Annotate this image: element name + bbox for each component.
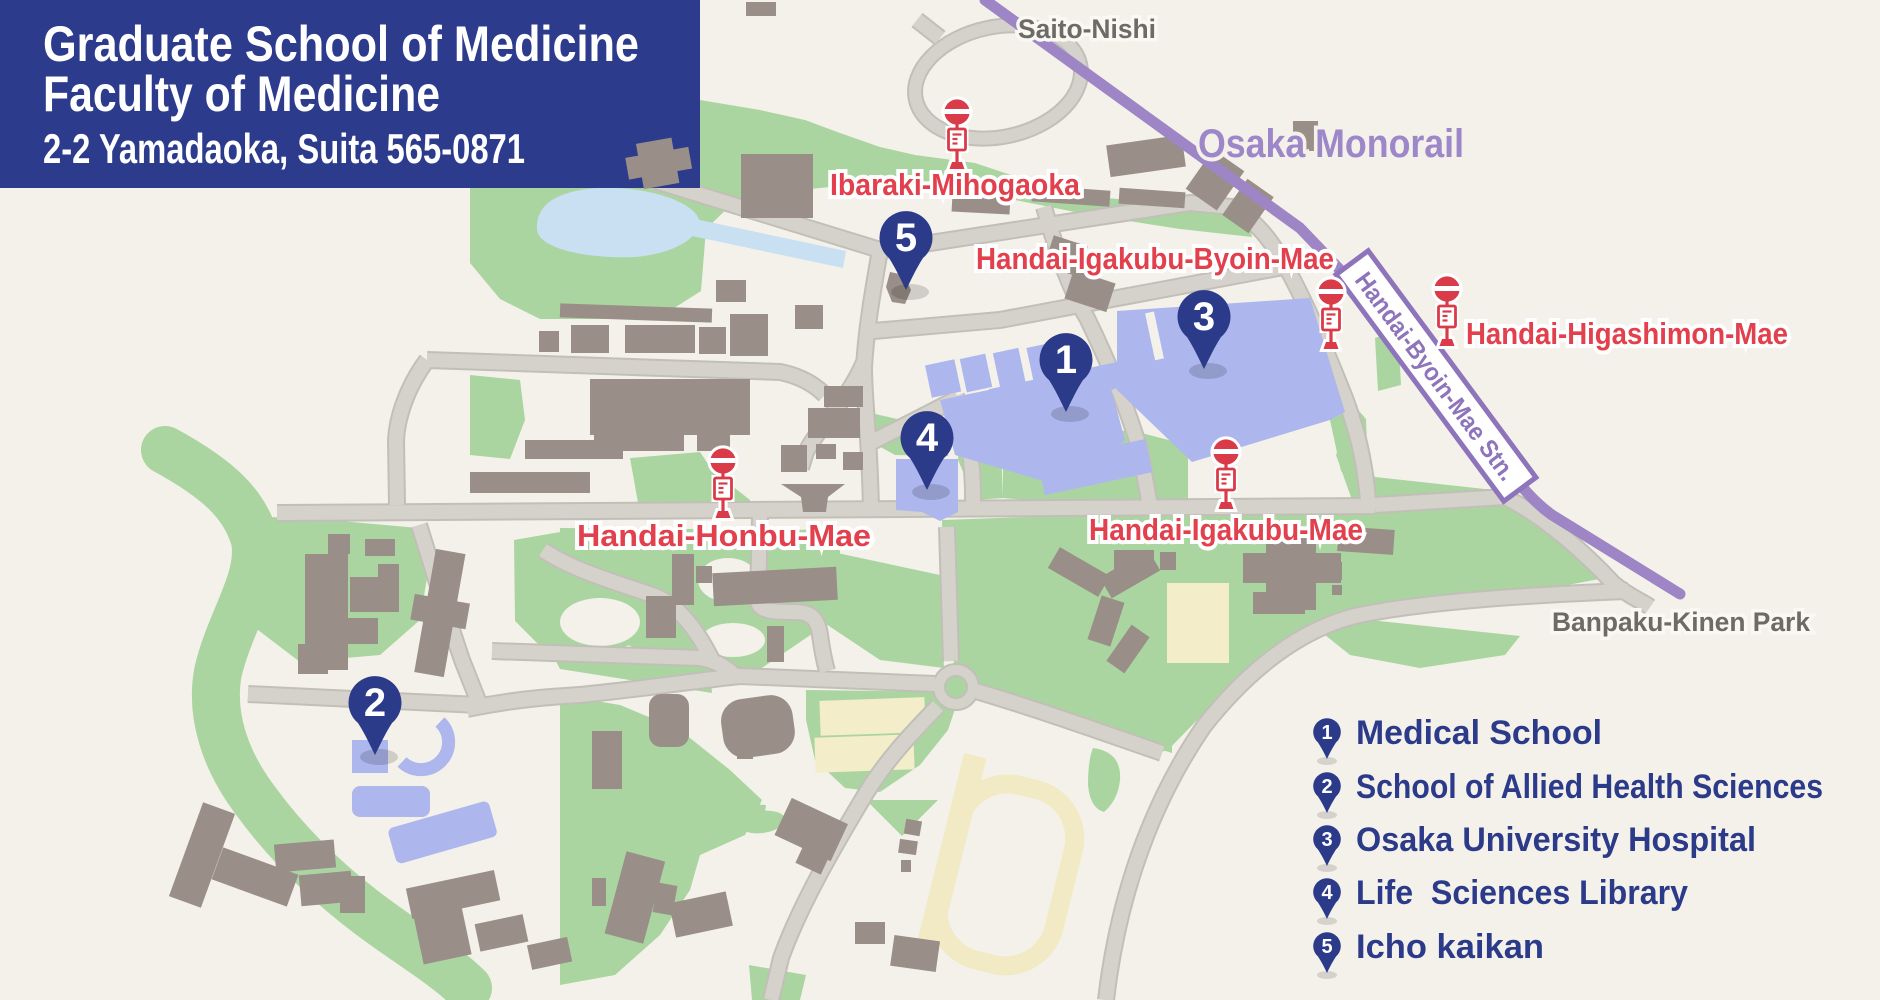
svg-text:Handai-Higashimon-Mae: Handai-Higashimon-Mae (1466, 316, 1788, 351)
svg-text:2: 2 (1321, 776, 1332, 798)
svg-text:5: 5 (1321, 936, 1332, 958)
svg-text:Handai-Igakubu-Byoin-Mae: Handai-Igakubu-Byoin-Mae (976, 241, 1334, 276)
svg-text:2: 2 (364, 681, 386, 725)
svg-text:2-2 Yamadaoka, Suita 565-0871: 2-2 Yamadaoka, Suita 565-0871 (43, 125, 525, 172)
svg-text:Icho kaikan: Icho kaikan (1356, 928, 1544, 966)
svg-text:4: 4 (916, 416, 939, 460)
svg-text:School of Allied Health Scienc: School of Allied Health Sciences (1356, 768, 1823, 806)
svg-text:Handai-Igakubu-Mae: Handai-Igakubu-Mae (1089, 512, 1363, 547)
svg-text:Medical School: Medical School (1356, 714, 1602, 752)
svg-text:Ibaraki-Mihogaoka: Ibaraki-Mihogaoka (830, 167, 1081, 202)
svg-text:3: 3 (1193, 295, 1215, 339)
svg-text:Banpaku-Kinen Park: Banpaku-Kinen Park (1552, 607, 1811, 637)
svg-text:Osaka University Hospital: Osaka University Hospital (1356, 821, 1756, 859)
svg-text:Graduate School of Medicine: Graduate School of Medicine (43, 16, 639, 72)
svg-text:Osaka Monorail: Osaka Monorail (1198, 122, 1464, 166)
svg-text:Saito-Nishi: Saito-Nishi (1018, 14, 1156, 44)
svg-text:1: 1 (1055, 338, 1077, 382)
svg-text:Life Sciences Library: Life Sciences Library (1356, 874, 1688, 912)
svg-text:Handai-Honbu-Mae: Handai-Honbu-Mae (577, 518, 871, 553)
svg-text:1: 1 (1321, 722, 1332, 744)
svg-text:5: 5 (895, 216, 917, 260)
svg-text:Faculty of Medicine: Faculty of Medicine (43, 66, 440, 122)
svg-text:4: 4 (1321, 882, 1333, 904)
svg-text:3: 3 (1321, 829, 1332, 851)
